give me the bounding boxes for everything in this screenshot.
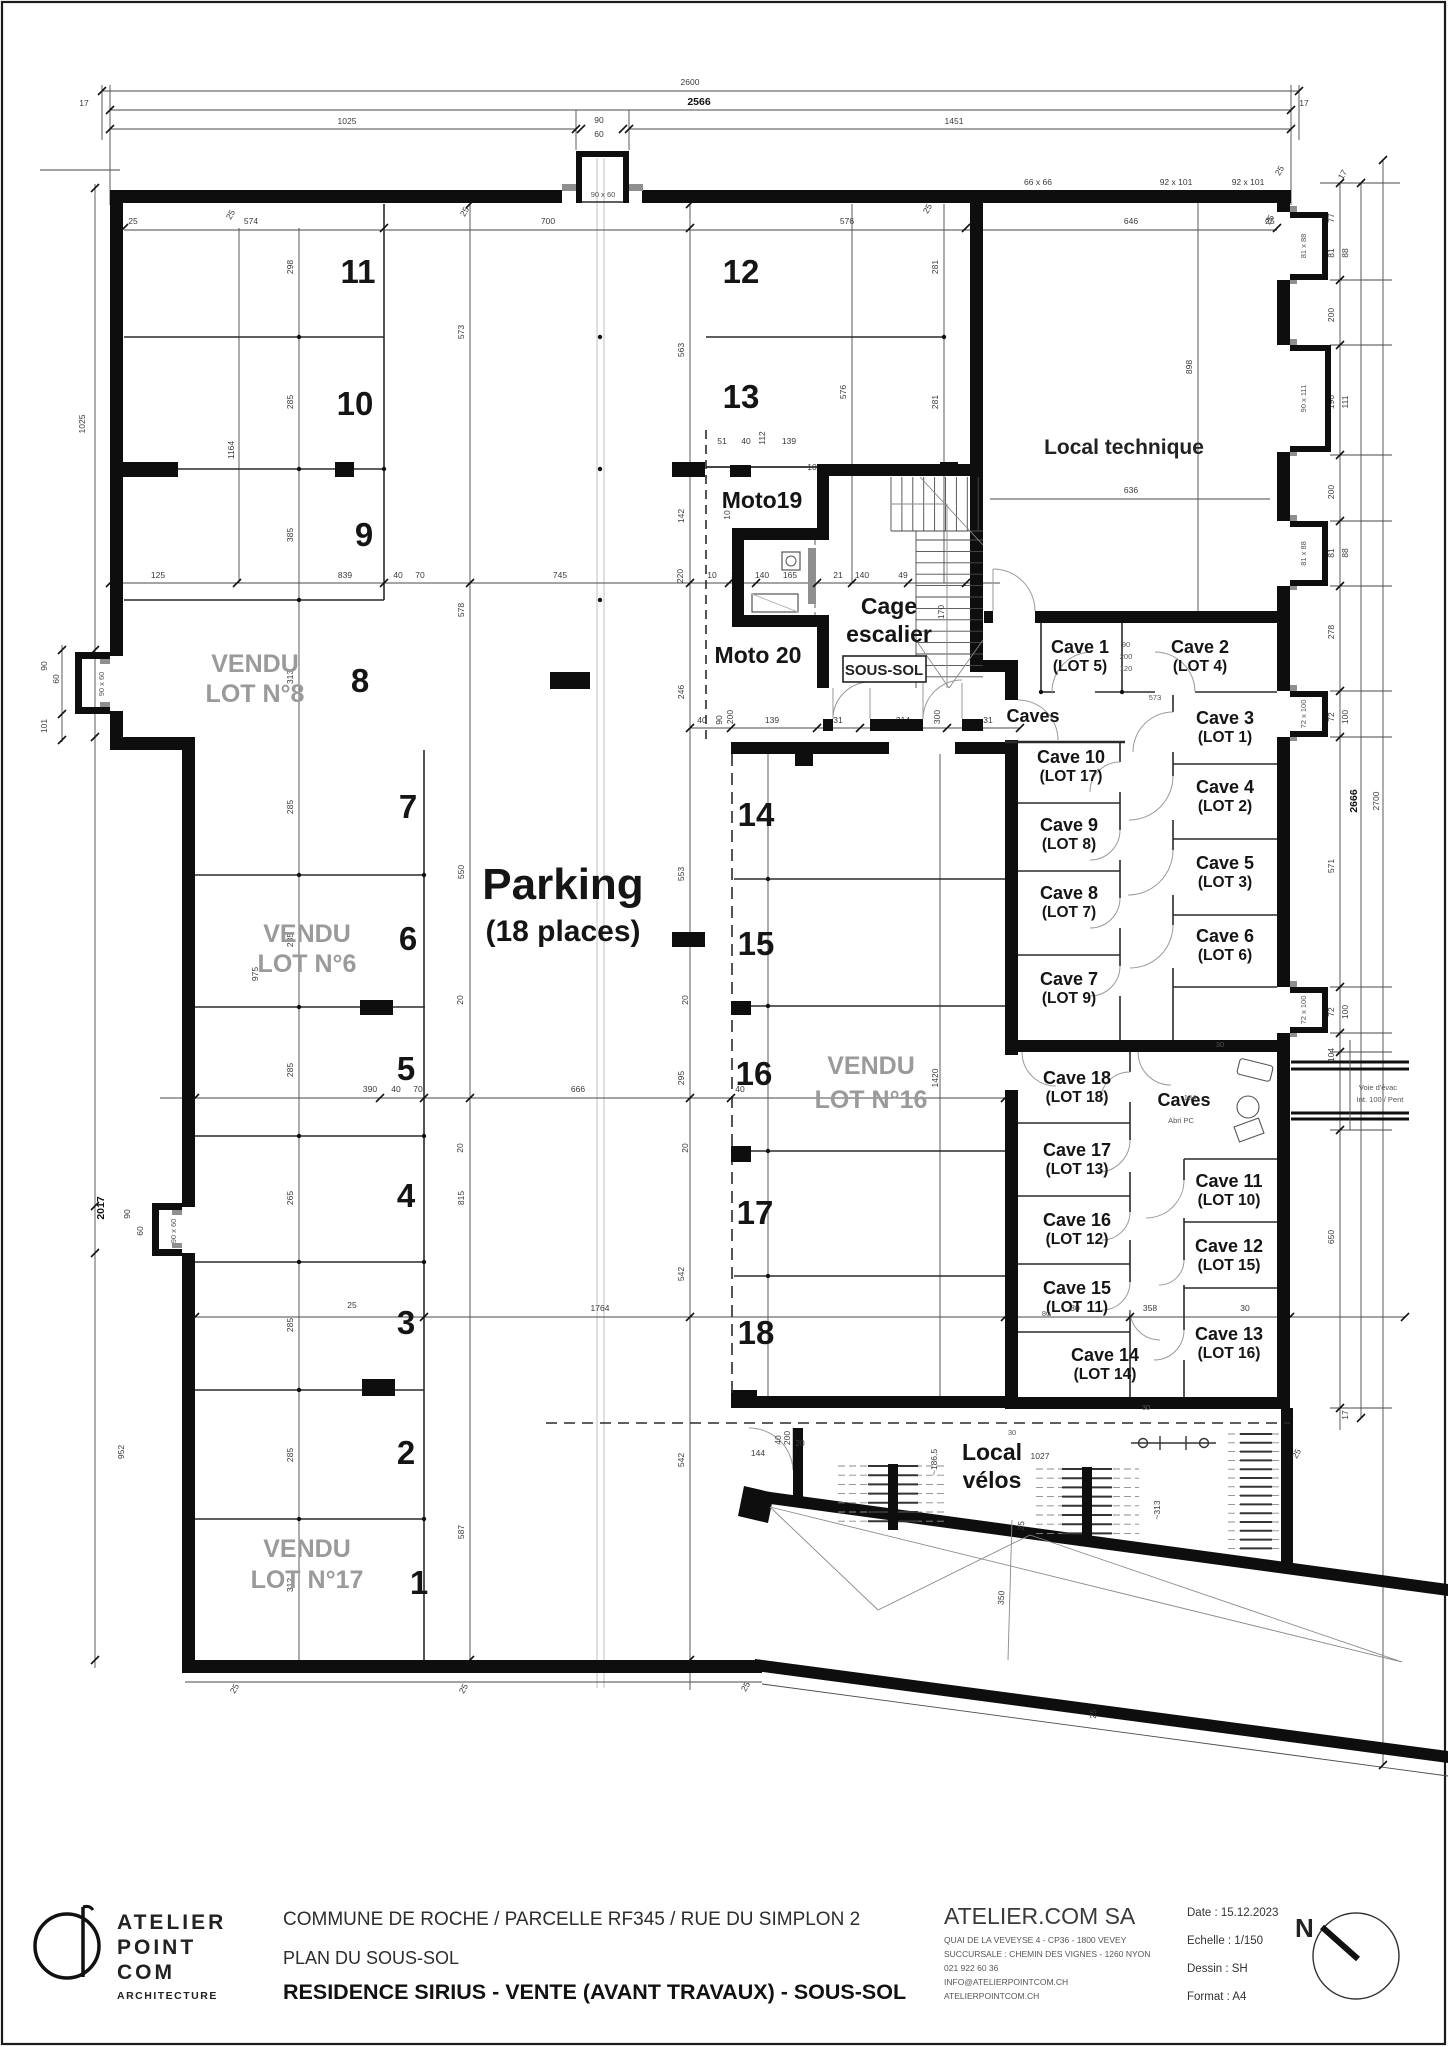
svg-text:90: 90: [39, 661, 49, 671]
svg-text:587: 587: [456, 1525, 466, 1539]
svg-text:66 x 66: 66 x 66: [1024, 177, 1052, 187]
svg-text:17: 17: [1340, 1410, 1350, 1420]
svg-text:220: 220: [675, 569, 685, 583]
svg-text:700: 700: [541, 216, 555, 226]
svg-text:(LOT 8): (LOT 8): [1042, 836, 1096, 853]
svg-text:Cave 11: Cave 11: [1195, 1171, 1262, 1191]
svg-text:VENDU: VENDU: [211, 650, 299, 678]
svg-text:573: 573: [1149, 693, 1162, 702]
svg-text:553: 553: [676, 867, 686, 881]
svg-text:VENDU: VENDU: [827, 1052, 915, 1080]
svg-text:144: 144: [751, 1448, 765, 1458]
svg-text:563: 563: [676, 343, 686, 357]
svg-text:6: 6: [399, 920, 417, 957]
svg-text:30: 30: [1142, 1403, 1150, 1412]
svg-text:72 x 100: 72 x 100: [1299, 700, 1308, 729]
svg-text:Cave 18: Cave 18: [1043, 1068, 1111, 1088]
svg-text:51: 51: [717, 436, 727, 446]
svg-text:571: 571: [1326, 859, 1336, 873]
svg-text:Local: Local: [962, 1439, 1022, 1465]
svg-text:Cave 9: Cave 9: [1040, 815, 1098, 835]
svg-text:ARCHITECTURE: ARCHITECTURE: [117, 1990, 218, 2002]
svg-text:(LOT 17): (LOT 17): [1040, 768, 1103, 785]
svg-text:~313: ~313: [1152, 1500, 1162, 1519]
svg-text:31: 31: [983, 715, 993, 725]
svg-text:139: 139: [765, 715, 779, 725]
svg-text:Int. 100 / Pent: Int. 100 / Pent: [1357, 1095, 1405, 1104]
svg-text:1420: 1420: [930, 1068, 940, 1087]
svg-text:11: 11: [341, 253, 376, 290]
svg-text:142: 142: [676, 509, 686, 523]
svg-text:70: 70: [415, 570, 425, 580]
svg-text:2700: 2700: [1371, 791, 1381, 810]
svg-text:88: 88: [1340, 248, 1350, 258]
svg-text:25: 25: [1088, 1708, 1099, 1718]
svg-text:650: 650: [1326, 1230, 1336, 1244]
svg-text:1027: 1027: [1031, 1451, 1050, 1461]
svg-text:90 x 111: 90 x 111: [1299, 385, 1308, 413]
svg-text:20: 20: [795, 1438, 805, 1448]
svg-text:100: 100: [1340, 710, 1350, 724]
svg-text:10: 10: [722, 510, 732, 520]
svg-text:(18 places): (18 places): [485, 915, 640, 948]
svg-text:ATELIERPOINTCOM.CH: ATELIERPOINTCOM.CH: [944, 1991, 1039, 2001]
svg-text:1451: 1451: [945, 116, 964, 126]
svg-text:9: 9: [355, 516, 373, 553]
svg-text:PLAN DU SOUS-SOL: PLAN DU SOUS-SOL: [283, 1948, 459, 1968]
svg-text:578: 578: [456, 603, 466, 617]
svg-text:~186.5: ~186.5: [929, 1449, 939, 1476]
svg-text:285: 285: [285, 800, 295, 814]
svg-text:285: 285: [285, 1063, 295, 1077]
svg-text:285: 285: [285, 1318, 295, 1332]
svg-text:021 922 60 36: 021 922 60 36: [944, 1963, 999, 1973]
svg-text:90 x 60: 90 x 60: [591, 190, 616, 199]
svg-text:(LOT 1): (LOT 1): [1198, 729, 1252, 746]
svg-text:200: 200: [782, 1431, 792, 1445]
svg-text:(LOT 3): (LOT 3): [1198, 874, 1252, 891]
svg-text:2666: 2666: [1348, 789, 1360, 813]
svg-text:17: 17: [1299, 98, 1309, 108]
svg-text:Cave 17: Cave 17: [1043, 1140, 1111, 1160]
svg-text:LOT N°8: LOT N°8: [206, 680, 305, 708]
svg-text:(LOT 5): (LOT 5): [1053, 658, 1107, 675]
svg-text:385: 385: [285, 528, 295, 542]
svg-text:60: 60: [135, 1226, 145, 1236]
svg-text:Cave 2: Cave 2: [1171, 637, 1229, 657]
svg-text:Cave 3: Cave 3: [1196, 708, 1254, 728]
svg-text:ATELIER: ATELIER: [117, 1911, 226, 1934]
svg-text:745: 745: [553, 570, 567, 580]
svg-text:1: 1: [410, 1564, 428, 1601]
svg-text:Moto 20: Moto 20: [715, 642, 802, 668]
svg-text:12: 12: [723, 253, 760, 290]
svg-text:265: 265: [285, 1191, 295, 1205]
svg-text:111: 111: [1340, 395, 1350, 408]
svg-text:31: 31: [833, 715, 843, 725]
svg-text:(LOT 13): (LOT 13): [1046, 1161, 1109, 1178]
svg-text:49: 49: [898, 570, 908, 580]
svg-text:100: 100: [1340, 1005, 1350, 1019]
svg-text:25: 25: [1016, 1520, 1027, 1530]
svg-text:285: 285: [285, 1448, 295, 1462]
svg-text:RESIDENCE SIRIUS - VENTE (AVAN: RESIDENCE SIRIUS - VENTE (AVANT TRAVAUX)…: [283, 1980, 906, 2004]
svg-text:(LOT 14): (LOT 14): [1074, 1366, 1137, 1383]
svg-text:90: 90: [122, 1209, 132, 1219]
svg-text:COMMUNE DE ROCHE / PARCELLE RF: COMMUNE DE ROCHE / PARCELLE RF345 / RUE …: [283, 1909, 860, 1930]
svg-text:40: 40: [741, 436, 751, 446]
svg-text:646: 646: [1124, 216, 1138, 226]
svg-text:666: 666: [571, 1084, 585, 1094]
svg-text:vélos: vélos: [963, 1467, 1022, 1493]
svg-text:90 x 60: 90 x 60: [97, 672, 106, 697]
svg-text:Cave 15: Cave 15: [1043, 1278, 1111, 1298]
svg-text:170: 170: [936, 605, 946, 619]
svg-text:LOT N°17: LOT N°17: [251, 1566, 364, 1594]
svg-text:30: 30: [1008, 1428, 1016, 1437]
svg-text:101: 101: [39, 719, 49, 733]
svg-text:81 x 88: 81 x 88: [1299, 234, 1308, 259]
svg-text:Cage: Cage: [861, 593, 917, 619]
svg-text:escalier: escalier: [846, 621, 932, 647]
svg-text:30: 30: [1216, 1040, 1224, 1049]
svg-text:Cave 14: Cave 14: [1071, 1345, 1139, 1365]
svg-text:Caves: Caves: [1006, 706, 1059, 726]
svg-text:542: 542: [676, 1267, 686, 1281]
svg-text:2017: 2017: [95, 1196, 107, 1220]
svg-text:15: 15: [738, 925, 775, 962]
svg-text:Cave 13: Cave 13: [1195, 1324, 1263, 1344]
svg-text:5: 5: [397, 1050, 415, 1087]
svg-text:(LOT 11): (LOT 11): [1046, 1299, 1108, 1316]
svg-text:SUCCURSALE : CHEMIN DES VIGNES: SUCCURSALE : CHEMIN DES VIGNES - 1260 NY…: [944, 1949, 1150, 1959]
svg-text:7: 7: [399, 788, 417, 825]
svg-text:(LOT 7): (LOT 7): [1042, 904, 1096, 921]
svg-text:200: 200: [1326, 485, 1336, 499]
svg-text:Cave 10: Cave 10: [1037, 747, 1105, 767]
svg-text:20: 20: [455, 995, 465, 1005]
svg-text:358: 358: [1143, 1303, 1157, 1313]
svg-text:898: 898: [1184, 360, 1194, 374]
svg-text:1164: 1164: [226, 441, 236, 460]
svg-text:10: 10: [707, 570, 717, 580]
svg-text:POINT: POINT: [117, 1936, 196, 1959]
svg-text:576: 576: [838, 385, 848, 399]
svg-text:139: 139: [782, 436, 796, 446]
svg-text:Local technique: Local technique: [1044, 436, 1204, 459]
svg-text:Cave 8: Cave 8: [1040, 883, 1098, 903]
svg-text:1764: 1764: [591, 1303, 610, 1313]
svg-text:40: 40: [393, 570, 403, 580]
svg-text:281: 281: [930, 260, 940, 274]
svg-text:17: 17: [79, 98, 89, 108]
svg-text:Date : 15.12.2023: Date : 15.12.2023: [1187, 1907, 1278, 1919]
svg-text:1025: 1025: [338, 116, 357, 126]
svg-text:18: 18: [738, 1314, 775, 1351]
svg-text:90: 90: [1122, 640, 1130, 649]
svg-text:88: 88: [1340, 548, 1350, 558]
svg-text:2: 2: [397, 1434, 415, 1471]
svg-text:20: 20: [680, 995, 690, 1005]
svg-text:90: 90: [714, 715, 724, 725]
svg-text:Cave 16: Cave 16: [1043, 1210, 1111, 1230]
svg-text:550: 550: [456, 865, 466, 879]
svg-text:246: 246: [676, 685, 686, 699]
svg-text:(LOT 16): (LOT 16): [1198, 1345, 1261, 1362]
svg-text:636: 636: [1124, 485, 1138, 495]
svg-text:573: 573: [456, 325, 466, 339]
svg-text:140: 140: [755, 570, 769, 580]
svg-text:25: 25: [347, 1300, 357, 1310]
svg-text:81 x 88: 81 x 88: [1299, 541, 1308, 566]
svg-text:INFO@ATELIERPOINTCOM.CH: INFO@ATELIERPOINTCOM.CH: [944, 1977, 1068, 1987]
svg-text:125: 125: [151, 570, 165, 580]
svg-text:8: 8: [351, 662, 369, 699]
svg-text:Dessin : SH: Dessin : SH: [1187, 1963, 1248, 1975]
svg-text:Format : A4: Format : A4: [1187, 1991, 1247, 2003]
svg-text:Moto19: Moto19: [722, 487, 803, 513]
svg-text:25: 25: [128, 216, 138, 226]
svg-text:200: 200: [725, 710, 735, 724]
svg-text:16: 16: [736, 1055, 773, 1092]
svg-text:17: 17: [737, 1194, 774, 1231]
svg-text:200: 200: [1120, 652, 1133, 661]
svg-text:Voie d'évac: Voie d'évac: [1359, 1083, 1397, 1092]
svg-text:(LOT 6): (LOT 6): [1198, 947, 1252, 964]
svg-text:2600: 2600: [681, 77, 700, 87]
svg-text:4: 4: [397, 1177, 416, 1214]
svg-text:LOT N°6: LOT N°6: [258, 950, 357, 978]
svg-text:ATELIER.COM SA: ATELIER.COM SA: [944, 1903, 1136, 1929]
svg-text:Cave 12: Cave 12: [1195, 1236, 1263, 1256]
svg-text:COM: COM: [117, 1961, 175, 1984]
svg-text:1025: 1025: [77, 414, 87, 433]
svg-text:20: 20: [680, 1143, 690, 1153]
svg-text:2566: 2566: [687, 96, 711, 108]
svg-text:542: 542: [676, 1453, 686, 1467]
svg-text:815: 815: [456, 1191, 466, 1205]
svg-text:200: 200: [1326, 308, 1336, 322]
svg-text:92 x 101: 92 x 101: [1232, 177, 1265, 187]
svg-text:Cave 5: Cave 5: [1196, 853, 1254, 873]
svg-text:278: 278: [1326, 625, 1336, 639]
svg-text:13: 13: [723, 378, 760, 415]
svg-text:Echelle : 1/150: Echelle : 1/150: [1187, 1935, 1263, 1947]
svg-text:14: 14: [738, 796, 775, 833]
svg-text:Abri PC: Abri PC: [1168, 1116, 1194, 1125]
svg-text:20: 20: [455, 1143, 465, 1153]
svg-text:80: 80: [1042, 1309, 1050, 1318]
svg-text:(LOT 18): (LOT 18): [1046, 1089, 1109, 1106]
svg-text:140: 140: [855, 570, 869, 580]
svg-text:(LOT 9): (LOT 9): [1042, 990, 1096, 1007]
svg-text:Cave 7: Cave 7: [1040, 969, 1098, 989]
svg-text:Parking: Parking: [482, 860, 643, 909]
svg-text:(LOT 10): (LOT 10): [1198, 1192, 1261, 1209]
svg-text:21: 21: [833, 570, 843, 580]
svg-text:QUAI DE LA VEVEYSE 4 - CP36 -: QUAI DE LA VEVEYSE 4 - CP36 - 1800 VEVEY: [944, 1935, 1127, 1945]
svg-text:184: 184: [1184, 1093, 1197, 1102]
svg-text:VENDU: VENDU: [263, 920, 351, 948]
svg-text:952: 952: [116, 1445, 126, 1459]
svg-text:(LOT 4): (LOT 4): [1173, 658, 1227, 675]
svg-text:839: 839: [338, 570, 352, 580]
svg-text:72 x 100: 72 x 100: [1299, 996, 1308, 1025]
svg-text:298: 298: [285, 260, 295, 274]
svg-text:3: 3: [397, 1304, 415, 1341]
svg-text:30: 30: [1240, 1303, 1250, 1313]
svg-text:10: 10: [807, 462, 817, 472]
svg-text:(LOT 2): (LOT 2): [1198, 798, 1252, 815]
svg-text:281: 281: [930, 395, 940, 409]
svg-text:300: 300: [932, 710, 942, 724]
svg-text:120: 120: [1120, 664, 1133, 673]
svg-text:VENDU: VENDU: [263, 1535, 351, 1563]
svg-text:295: 295: [676, 1071, 686, 1085]
svg-text:350: 350: [996, 1590, 1007, 1605]
svg-text:60: 60: [594, 129, 604, 139]
svg-text:LOT N°16: LOT N°16: [815, 1086, 928, 1114]
svg-text:285: 285: [285, 395, 295, 409]
svg-text:(LOT 12): (LOT 12): [1046, 1231, 1109, 1248]
svg-text:92 x 101: 92 x 101: [1160, 177, 1193, 187]
svg-text:N: N: [1295, 1913, 1314, 1943]
svg-text:(LOT 15): (LOT 15): [1198, 1257, 1261, 1274]
svg-text:SOUS-SOL: SOUS-SOL: [845, 662, 923, 679]
svg-text:10: 10: [337, 385, 374, 422]
svg-text:112: 112: [757, 431, 767, 445]
svg-text:Cave 4: Cave 4: [1196, 777, 1254, 797]
svg-text:90 x 60: 90 x 60: [169, 1219, 178, 1244]
svg-text:165: 165: [783, 570, 797, 580]
svg-text:390: 390: [363, 1084, 377, 1094]
svg-text:60: 60: [51, 674, 61, 684]
svg-text:Cave 6: Cave 6: [1196, 926, 1254, 946]
svg-text:576: 576: [840, 216, 854, 226]
svg-text:574: 574: [244, 216, 258, 226]
svg-text:90: 90: [594, 115, 604, 125]
svg-text:104: 104: [1326, 1048, 1336, 1062]
svg-text:Cave 1: Cave 1: [1051, 637, 1109, 657]
